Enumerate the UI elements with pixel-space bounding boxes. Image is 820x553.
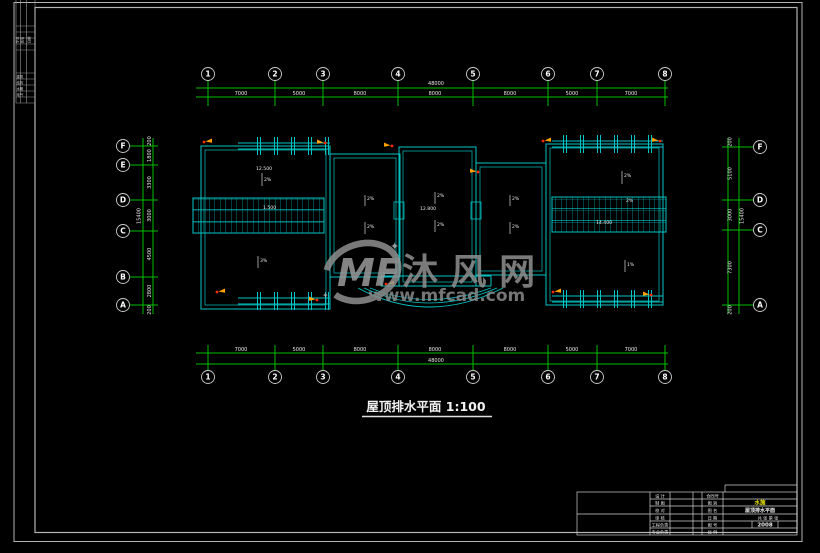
axis-label-top-5: 5 [470,70,475,79]
axis-label-top-2: 2 [272,70,277,79]
drain-marker-icon [470,169,479,174]
axis-label-bottom-4: 4 [395,373,400,382]
drawing-title-text: 屋顶排水平面 1:100 [366,399,485,414]
dim-label: 200 [728,305,734,315]
titleblock-label: 工程负责 [652,521,669,528]
titleblock-number: 2008 [757,523,772,529]
titleblock-label: 比 例 [708,528,718,535]
titleblock-phase: 水施 [754,499,766,507]
watermark-sparkle-icon: ✦ [390,240,399,253]
slope-label: 1% [627,262,635,268]
title-block: 设 计 制 图 校 对 审 核 工程负责 专业负责 合同号 图 别 图 名 日 … [577,485,797,535]
dim-label: 7300 [728,261,734,274]
axis-label-top-4: 4 [395,70,400,79]
slope-label: 2% [264,177,272,183]
axis-label-top-8: 8 [662,70,667,79]
dim-label: 8000 [429,91,442,97]
axis-label-bottom-3: 3 [320,373,325,382]
dim-label: 200 [147,305,153,315]
axis-label-left-B: B [120,273,126,282]
titleblock-label: 图 号 [708,522,718,528]
axis-label-bottom-6: 6 [545,373,550,382]
dim-label: 7000 [235,347,248,353]
titleblock-label: 校 对 [655,507,665,514]
stamp-row-2: 结构 [17,80,24,85]
titleblock-label: 制 图 [655,499,665,506]
axis-label-left-C: C [120,227,126,236]
dim-label: 8000 [429,347,442,353]
axis-label-bottom-2: 2 [272,373,277,382]
axis-grid-left: 200 1800 3300 3000 4500 2800 200 15400 F… [117,136,159,315]
axis-label-left-A: A [120,301,126,310]
slope-label: 2% [512,224,520,230]
dim-total-bottom: 48000 [428,358,444,364]
cad-canvas: 专业 姓名 日期 建筑 结构 水暖 电气 48000 7000 5000 800… [0,0,820,553]
axis-grid-top: 48000 7000 5000 8000 8000 8000 5000 7000… [196,68,672,107]
slope-label: 2% [437,193,445,199]
axis-label-top-7: 7 [594,70,599,79]
axis-label-right-C: C [757,226,763,235]
elevation-label: 12.800 [420,206,436,212]
slope-label: 2% [512,196,520,202]
axis-label-right-F: F [757,143,762,152]
watermark-sparkle-icon: ✦ [322,291,329,300]
slope-label: 2% [626,198,634,204]
dim-label: 2800 [147,285,153,298]
drain-marker-icon [203,139,212,144]
axis-label-left-F: F [120,142,125,151]
dim-total-top: 48000 [428,81,444,87]
dim-label: 7000 [625,347,638,353]
dim-label: 5000 [566,91,579,97]
axis-label-bottom-8: 8 [662,373,667,382]
drain-marker-icon [384,143,393,148]
dim-label: 3300 [147,176,153,189]
slope-label: 3% [260,258,268,264]
elevation-label: 14.400 [596,220,612,226]
titleblock-sheets: 共 张 第 张 [758,514,780,521]
slope-label: 2% [367,224,375,230]
slope-label: 2% [437,222,445,228]
axis-label-top-1: 1 [205,70,210,79]
drain-marker-icon [216,289,225,294]
dim-label: 3000 [147,209,153,222]
dim-label: 1800 [147,149,153,162]
titleblock-label: 图 别 [708,499,718,506]
titleblock-label: 设 计 [655,492,665,499]
dim-total-right: 15400 [740,208,746,224]
axis-label-top-6: 6 [545,70,550,79]
corner-stamp: 专业 姓名 日期 建筑 结构 水暖 电气 [14,0,35,103]
dim-label: 8000 [354,347,367,353]
titleblock-drawing-name: 屋顶排水平面 [745,507,775,514]
titleblock-label: 日 期 [708,515,718,521]
dim-label: 8000 [504,91,517,97]
watermark: MF ✦ ✦ 沐 风 网 www.mfcad.com [318,234,535,310]
slope-label: 2% [624,173,632,179]
elevation-label: 1.500 [263,205,276,211]
stamp-header-1: 专业 [14,36,19,43]
axis-label-top-3: 3 [320,70,325,79]
stamp-row-3: 水暖 [17,86,24,91]
axis-grid-bottom: 7000 5000 8000 8000 8000 5000 7000 48000… [196,345,672,384]
dim-label: 200 [728,137,734,147]
walkway-left [193,198,324,233]
axis-label-bottom-5: 5 [470,373,475,382]
elevation-label: 12.500 [256,166,272,172]
dim-label: 5000 [293,347,306,353]
axis-label-left-E: E [120,161,125,170]
watermark-url: www.mfcad.com [368,286,525,306]
dim-label: 4500 [147,248,153,261]
dim-total-left: 15400 [137,208,143,224]
drawing-title: 屋顶排水平面 1:100 [362,399,492,417]
axis-grid-right: 200 5100 3000 7300 200 15400 F D C A [722,137,767,315]
titleblock-label: 审 核 [655,514,666,521]
dim-label: 5100 [728,167,734,180]
dim-label: 7000 [235,91,248,97]
drain-marker-icon [552,289,561,294]
stamp-header-2: 姓名 [20,37,25,44]
stamp-row-1: 建筑 [17,74,24,79]
stamp-header-3: 日期 [27,36,32,43]
dim-label: 5000 [293,91,306,97]
dim-label: 3000 [728,209,734,222]
stamp-row-4: 电气 [17,92,24,97]
axis-label-bottom-7: 7 [594,373,599,382]
axis-label-bottom-1: 1 [205,373,210,382]
drain-marker-icon [542,138,551,143]
dim-label: 8000 [354,91,367,97]
dim-label: 8000 [504,347,517,353]
axis-label-left-D: D [120,196,126,205]
titleblock-label: 合同号 [706,492,719,499]
titleblock-label: 专业负责 [652,528,669,535]
dim-label: 7000 [625,91,638,97]
slope-label: 2% [367,196,375,202]
walkway-right [552,197,666,232]
dim-label: 5000 [566,347,579,353]
titleblock-label: 图 名 [708,507,718,514]
drawing-sheet: 专业 姓名 日期 建筑 结构 水暖 电气 48000 7000 5000 800… [0,0,820,553]
axis-label-right-D: D [757,196,763,205]
axis-label-right-A: A [757,301,763,310]
dim-label: 200 [147,136,153,146]
